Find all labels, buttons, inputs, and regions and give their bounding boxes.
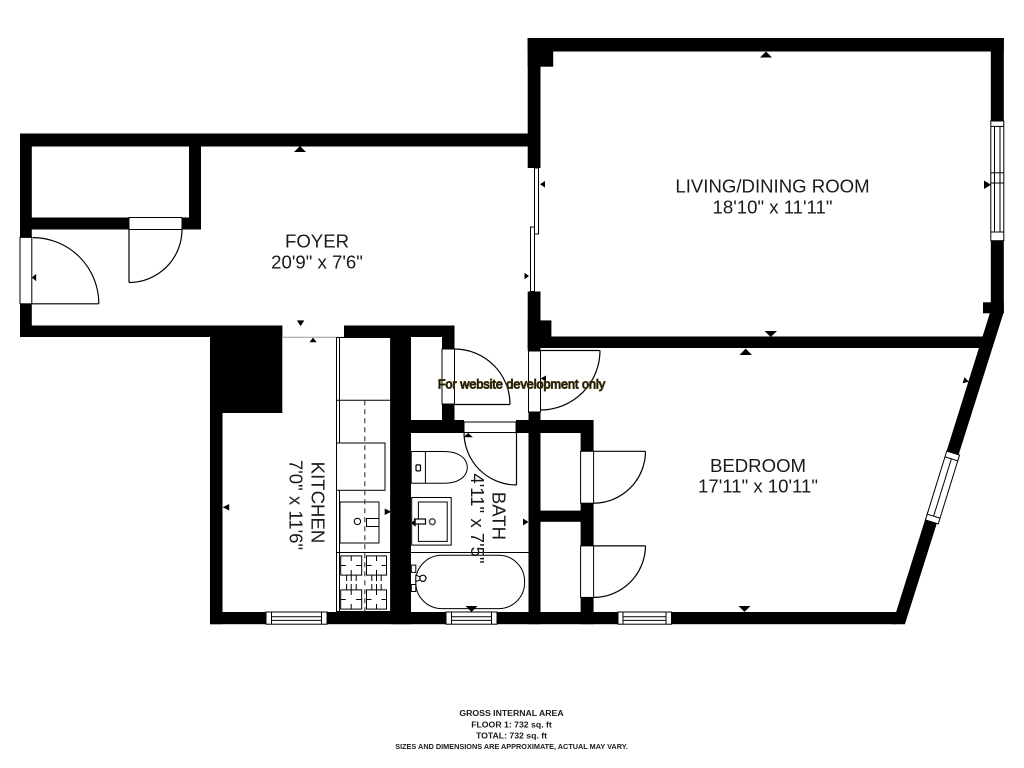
svg-text:FLOOR 1: 732 sq. ft: FLOOR 1: 732 sq. ft xyxy=(471,719,552,729)
svg-text:SIZES AND DIMENSIONS ARE APPRO: SIZES AND DIMENSIONS ARE APPROXIMATE, AC… xyxy=(395,742,628,751)
svg-text:18'10" x 11'11": 18'10" x 11'11" xyxy=(713,197,833,218)
svg-text:BEDROOM: BEDROOM xyxy=(710,455,806,476)
svg-text:BATH: BATH xyxy=(488,492,509,540)
svg-text:LIVING/DINING ROOM: LIVING/DINING ROOM xyxy=(675,176,869,197)
svg-text:For website development only: For website development only xyxy=(438,378,606,392)
svg-text:TOTAL: 732 sq. ft: TOTAL: 732 sq. ft xyxy=(476,731,547,741)
svg-text:KITCHEN: KITCHEN xyxy=(308,462,329,544)
svg-text:20'9" x 7'6": 20'9" x 7'6" xyxy=(271,252,363,273)
svg-text:GROSS INTERNAL AREA: GROSS INTERNAL AREA xyxy=(459,708,564,718)
svg-text:7'0" x 11'6": 7'0" x 11'6" xyxy=(285,460,306,550)
svg-text:17'11" x 10'11": 17'11" x 10'11" xyxy=(698,476,818,497)
svg-text:FOYER: FOYER xyxy=(285,231,349,252)
svg-text:4'11" x 7'5": 4'11" x 7'5" xyxy=(467,473,488,563)
